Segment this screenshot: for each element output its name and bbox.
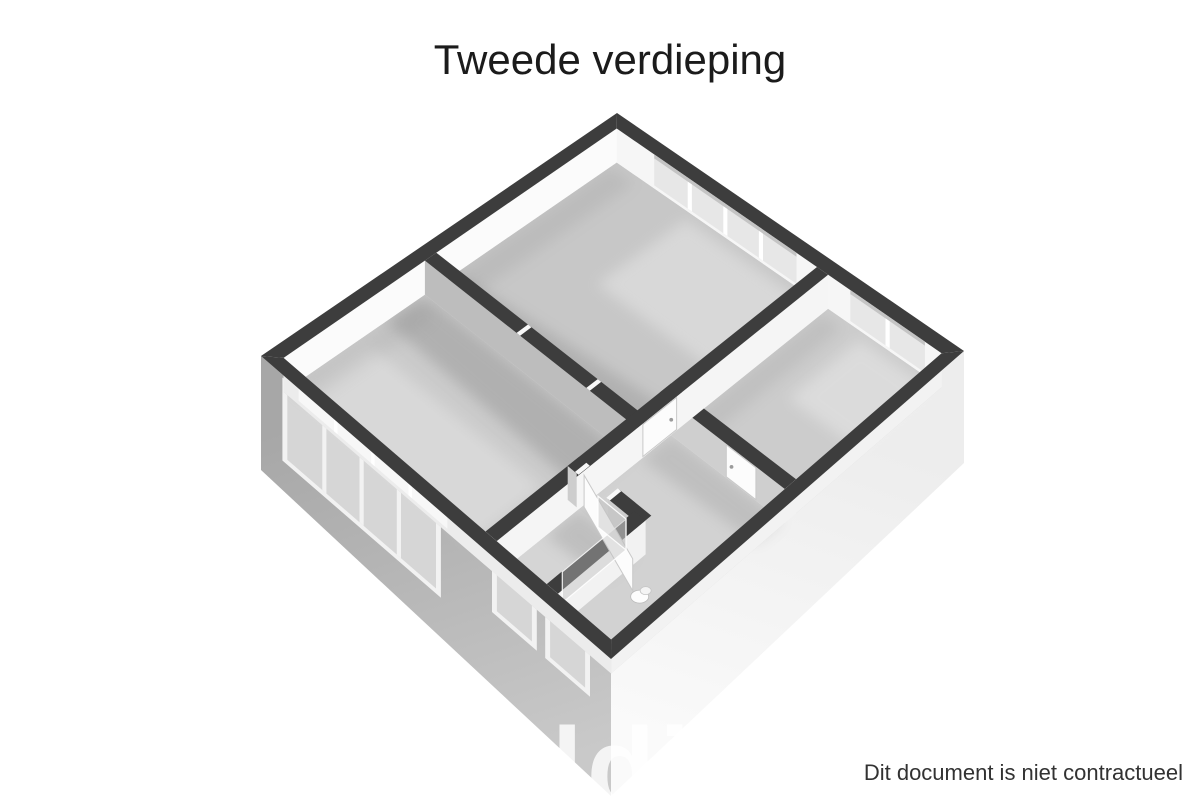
page-title: Tweede verdieping [10,36,1200,84]
floor-plan-page: addit Tweede verdieping Dit document is … [0,0,1200,801]
door-handle [730,465,734,469]
mullion [723,206,727,236]
mullion [322,417,326,494]
mullion [397,482,401,559]
disclaimer-text: Dit document is niet contractueel [864,760,1183,786]
door-handle [669,418,673,422]
toilet-tank [640,587,651,595]
floor-plan-3d: addit [0,0,1200,801]
mullion [886,318,890,348]
mullion [360,449,364,526]
watermark-text: addit [448,705,736,801]
mullion [688,182,692,212]
mullion [759,231,763,261]
